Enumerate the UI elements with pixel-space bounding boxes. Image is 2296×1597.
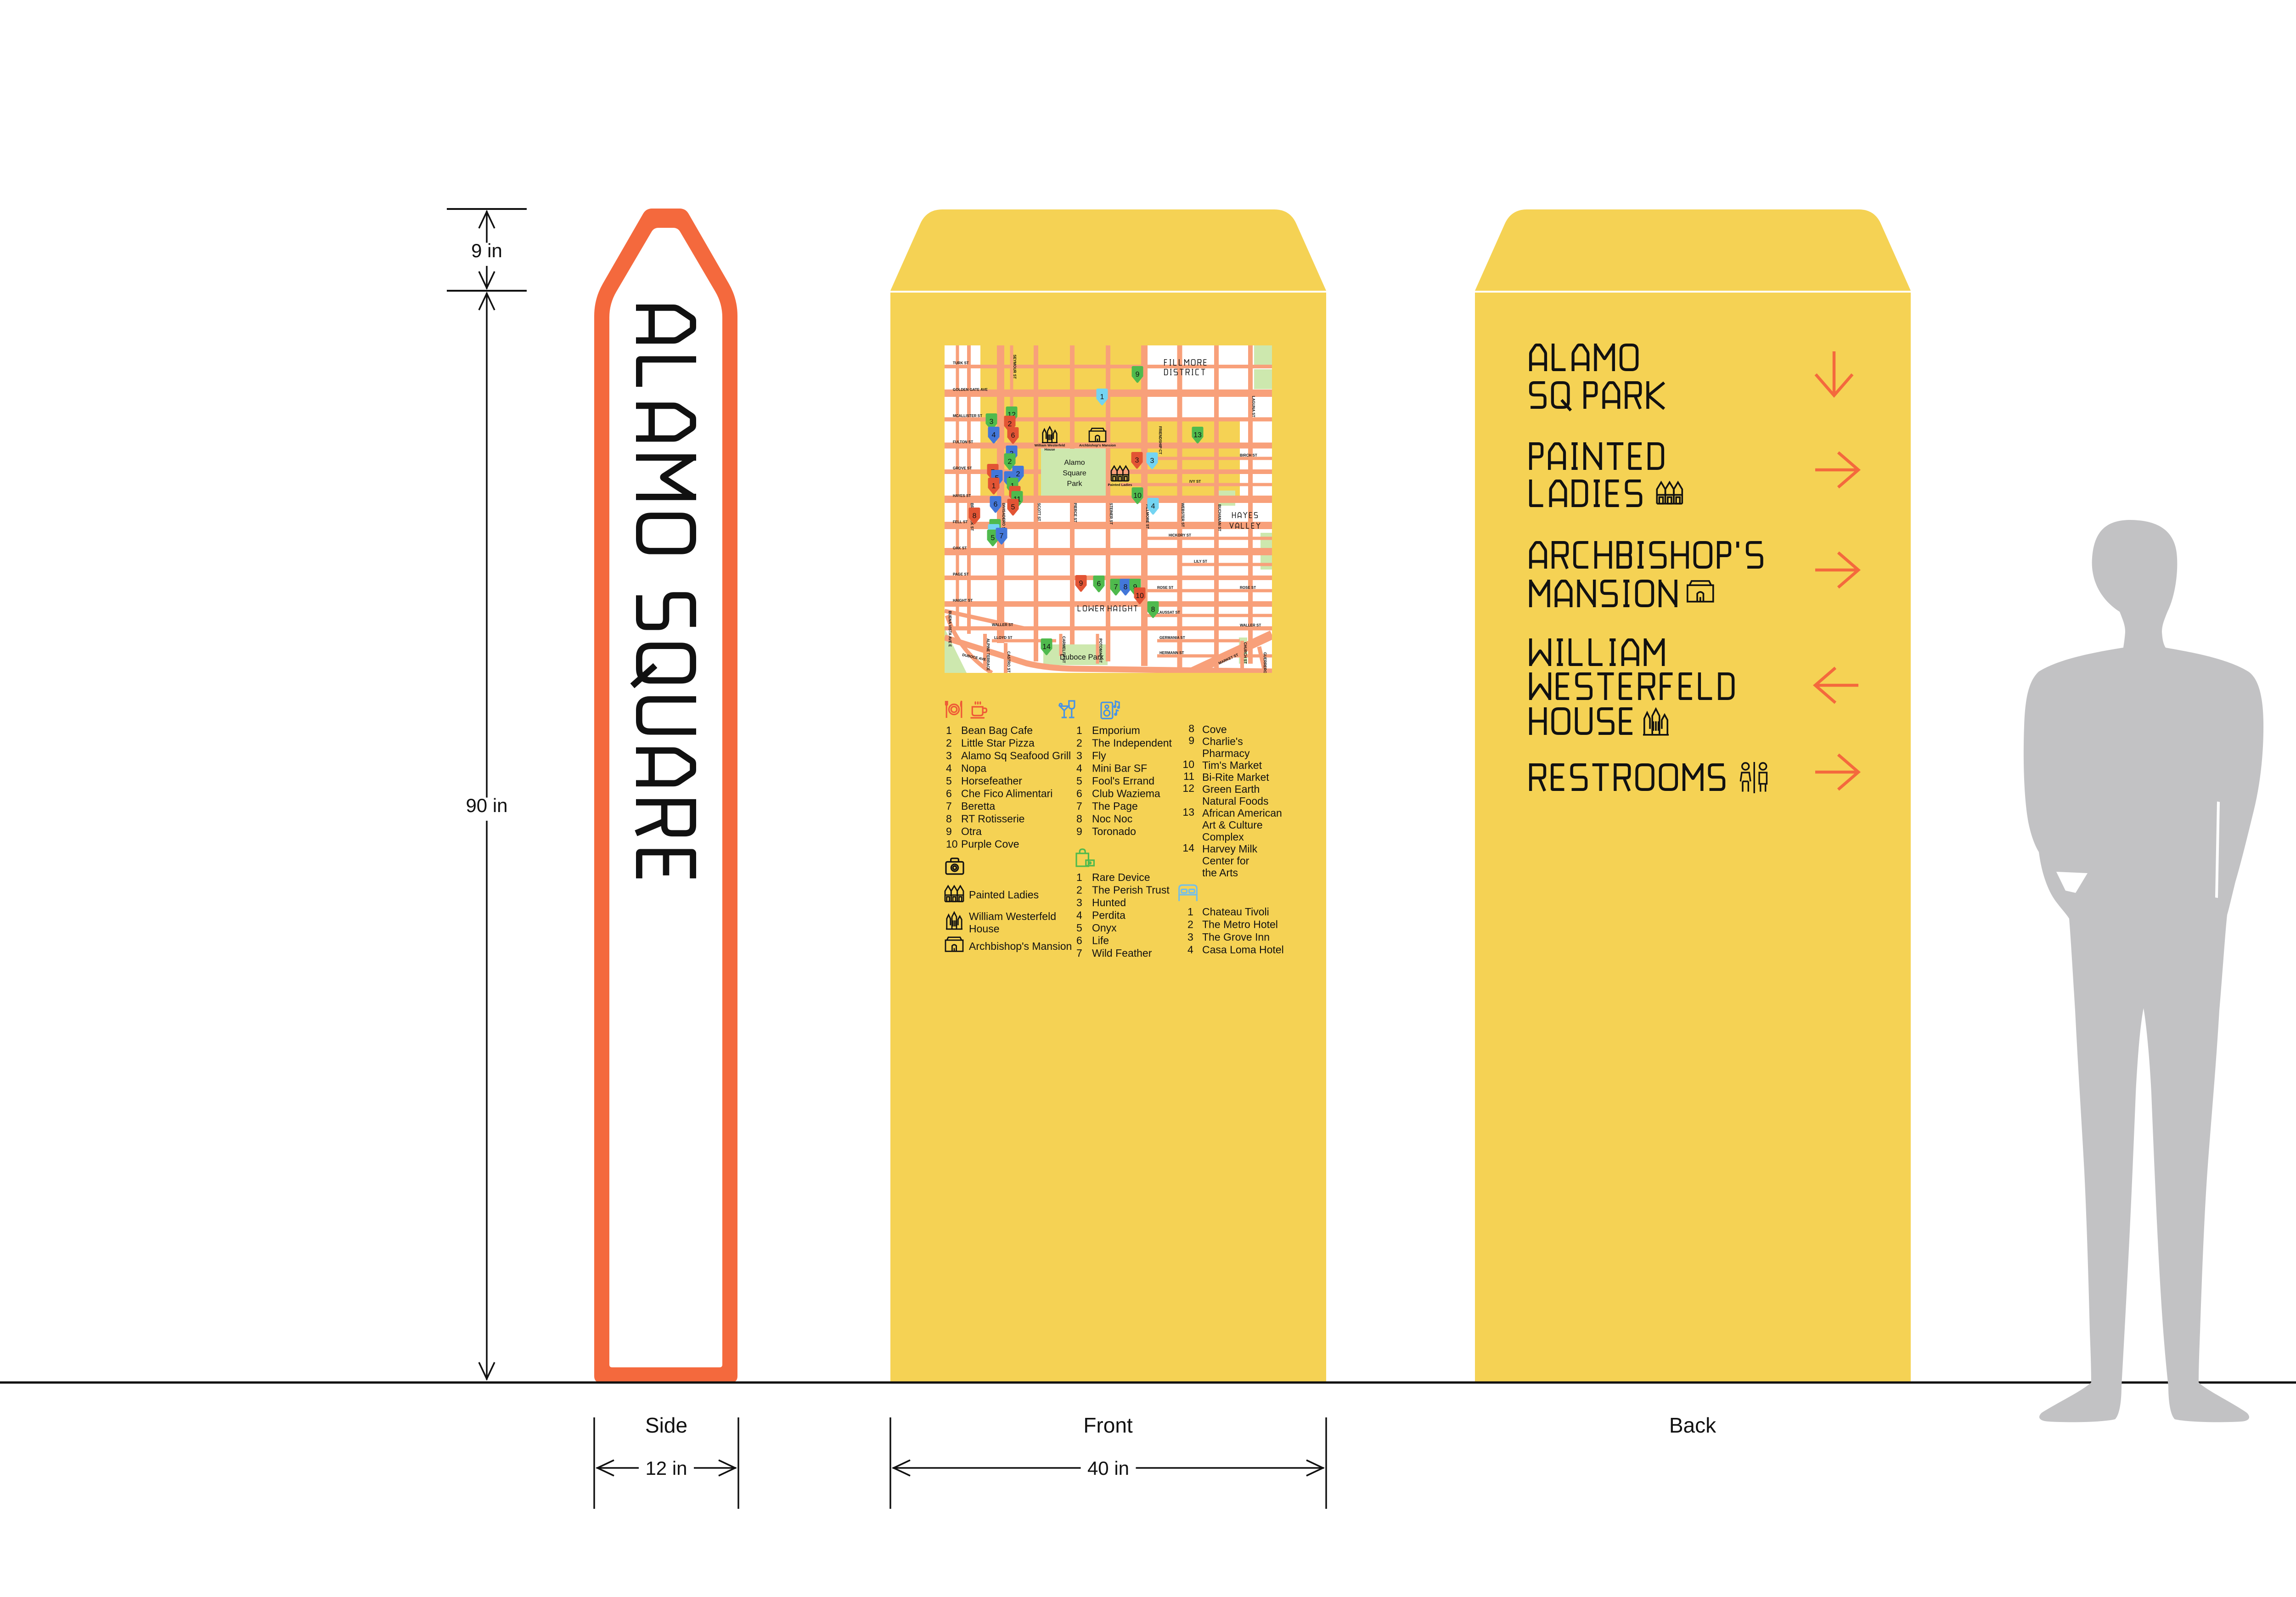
svg-text:Bi-Rite Market: Bi-Rite Market (1202, 771, 1269, 783)
svg-text:4: 4 (946, 762, 952, 774)
svg-text:William Westerfeld: William Westerfeld (969, 910, 1056, 922)
svg-text:2: 2 (1008, 420, 1012, 428)
svg-text:LAUSSAT ST: LAUSSAT ST (1157, 610, 1180, 615)
svg-text:4: 4 (1187, 944, 1193, 956)
svg-text:Center for: Center for (1202, 855, 1249, 867)
svg-text:Bean Bag Cafe: Bean Bag Cafe (961, 724, 1033, 736)
svg-text:SEYMOUR ST: SEYMOUR ST (1013, 355, 1017, 379)
svg-text:6: 6 (1011, 432, 1015, 440)
svg-text:Beretta: Beretta (961, 800, 995, 812)
svg-text:9: 9 (1188, 734, 1194, 746)
svg-text:Duboce Park: Duboce Park (1060, 653, 1104, 661)
svg-text:4: 4 (1151, 502, 1155, 510)
svg-text:Green Earth: Green Earth (1202, 783, 1260, 795)
svg-text:Perdita: Perdita (1092, 909, 1125, 921)
svg-text:Life: Life (1092, 935, 1109, 947)
svg-text:Rare Device: Rare Device (1092, 871, 1150, 883)
svg-text:OAK ST: OAK ST (953, 546, 967, 550)
svg-text:LAGUNA ST: LAGUNA ST (1251, 396, 1255, 417)
svg-text:2: 2 (1076, 737, 1082, 749)
svg-text:STEINER ST: STEINER ST (1109, 503, 1113, 525)
svg-text:Side: Side (645, 1413, 687, 1437)
svg-text:5: 5 (1076, 922, 1082, 934)
svg-text:6: 6 (1097, 580, 1101, 588)
svg-text:African American: African American (1202, 807, 1282, 819)
svg-text:1: 1 (1076, 724, 1082, 736)
svg-text:HICKORY ST: HICKORY ST (1169, 533, 1191, 537)
svg-text:Mini Bar SF: Mini Bar SF (1092, 762, 1147, 774)
svg-text:6: 6 (946, 788, 952, 800)
svg-text:6: 6 (994, 501, 998, 508)
svg-text:8: 8 (1124, 583, 1128, 591)
svg-text:Wild Feather: Wild Feather (1092, 947, 1152, 959)
svg-text:6: 6 (1076, 788, 1082, 800)
svg-text:Charlie's: Charlie's (1202, 735, 1243, 747)
svg-text:8: 8 (1151, 606, 1155, 614)
svg-text:ROSE ST: ROSE ST (1240, 586, 1256, 590)
svg-text:10: 10 (1136, 592, 1144, 600)
svg-text:1: 1 (946, 724, 952, 736)
svg-text:CASTRO ST: CASTRO ST (1007, 651, 1011, 672)
svg-text:Toronado: Toronado (1092, 825, 1136, 837)
svg-text:9: 9 (1136, 371, 1140, 378)
svg-text:7: 7 (1000, 532, 1004, 540)
svg-text:Little Star Pizza: Little Star Pizza (961, 737, 1035, 749)
svg-text:Chateau Tivoli: Chateau Tivoli (1202, 906, 1269, 918)
svg-text:8: 8 (973, 512, 977, 520)
svg-text:7: 7 (1076, 800, 1082, 812)
svg-text:4: 4 (992, 431, 996, 439)
svg-text:DIVISADERO ST: DIVISADERO ST (1002, 503, 1006, 531)
svg-text:4: 4 (1076, 909, 1082, 921)
svg-text:HERMANN ST: HERMANN ST (1159, 651, 1184, 655)
svg-text:William Westerfeld: William Westerfeld (1035, 443, 1065, 447)
svg-text:2: 2 (1187, 919, 1193, 931)
svg-text:6: 6 (1076, 935, 1082, 947)
svg-text:FULTON ST: FULTON ST (953, 440, 973, 444)
svg-text:The Perish Trust: The Perish Trust (1092, 884, 1170, 896)
svg-text:8: 8 (946, 813, 952, 825)
svg-text:40 in: 40 in (1087, 1457, 1129, 1479)
svg-text:BUCHANAN ST: BUCHANAN ST (1217, 504, 1221, 531)
svg-text:9: 9 (1079, 580, 1083, 587)
svg-text:RT Rotisserie: RT Rotisserie (961, 813, 1024, 825)
svg-text:SCOTT ST: SCOTT ST (1037, 503, 1041, 521)
svg-text:MCALLISTER ST: MCALLISTER ST (953, 414, 982, 418)
svg-text:Front: Front (1083, 1413, 1133, 1437)
svg-text:Painted Ladies: Painted Ladies (969, 889, 1039, 901)
svg-text:Tim's Market: Tim's Market (1202, 759, 1262, 771)
svg-text:House: House (1045, 447, 1055, 451)
svg-text:3: 3 (1076, 897, 1082, 909)
svg-text:1: 1 (992, 482, 996, 490)
svg-text:Onyx: Onyx (1092, 922, 1117, 934)
svg-text:11: 11 (1183, 770, 1194, 782)
svg-text:Archbishop's Mansion: Archbishop's Mansion (969, 940, 1072, 952)
svg-text:GROVE ST: GROVE ST (953, 466, 972, 470)
svg-text:GOLDEN GATE AVE: GOLDEN GATE AVE (953, 388, 988, 392)
svg-text:LLOYD ST: LLOYD ST (994, 636, 1013, 640)
svg-text:ALPINE TERRACE: ALPINE TERRACE (986, 638, 990, 671)
svg-text:Hunted: Hunted (1092, 897, 1126, 909)
svg-text:13: 13 (1182, 806, 1194, 818)
svg-text:TURK ST: TURK ST (953, 361, 969, 365)
svg-text:The Page: The Page (1092, 800, 1138, 812)
svg-text:The Grove Inn: The Grove Inn (1202, 931, 1270, 943)
svg-text:BUENA VISTA AVE E: BUENA VISTA AVE E (948, 611, 952, 647)
svg-text:Cove: Cove (1202, 723, 1227, 735)
svg-text:10: 10 (1133, 492, 1142, 500)
svg-text:10: 10 (1182, 758, 1194, 770)
svg-text:Emporium: Emporium (1092, 724, 1140, 736)
svg-text:10: 10 (946, 838, 958, 850)
svg-text:Alamo Sq Seafood Grill: Alamo Sq Seafood Grill (961, 750, 1071, 762)
svg-text:Alamo: Alamo (1064, 459, 1085, 467)
svg-text:2: 2 (1008, 458, 1012, 466)
svg-text:BIRCH ST: BIRCH ST (1240, 453, 1257, 457)
svg-text:the Arts: the Arts (1202, 867, 1238, 879)
svg-text:FRIENDSHIP CT: FRIENDSHIP CT (1158, 426, 1162, 454)
svg-text:Otra: Otra (961, 825, 982, 837)
svg-text:12: 12 (1182, 782, 1194, 794)
svg-text:Park: Park (1067, 480, 1083, 488)
svg-text:14: 14 (1042, 643, 1051, 651)
svg-text:WALLER ST: WALLER ST (992, 623, 1013, 627)
svg-text:Archbishop's Mansion: Archbishop's Mansion (1079, 443, 1116, 447)
svg-text:5: 5 (991, 534, 995, 542)
svg-text:9 in: 9 in (471, 240, 502, 261)
svg-text:4: 4 (1076, 762, 1082, 774)
svg-text:Casa Loma Hotel: Casa Loma Hotel (1202, 944, 1284, 956)
svg-text:Square: Square (1063, 469, 1086, 477)
svg-text:14: 14 (1182, 842, 1194, 854)
svg-text:3: 3 (1187, 931, 1193, 943)
svg-text:HAYES ST: HAYES ST (953, 494, 971, 498)
svg-text:3: 3 (1135, 457, 1139, 464)
svg-text:The Metro Hotel: The Metro Hotel (1202, 919, 1278, 931)
svg-text:5: 5 (946, 775, 952, 787)
svg-text:7: 7 (1114, 583, 1118, 591)
svg-text:WEBSTER ST: WEBSTER ST (1181, 503, 1185, 527)
svg-text:2: 2 (946, 737, 952, 749)
svg-text:Purple Cove: Purple Cove (961, 838, 1019, 850)
svg-text:Nopa: Nopa (961, 762, 986, 774)
svg-text:PIERCE ST: PIERCE ST (1073, 503, 1077, 522)
svg-text:Painted Ladies: Painted Ladies (1108, 483, 1132, 487)
svg-text:3: 3 (990, 418, 994, 426)
svg-text:Horsefeather: Horsefeather (961, 775, 1022, 787)
svg-text:Noc Noc: Noc Noc (1092, 813, 1132, 825)
svg-text:WALLER ST: WALLER ST (1240, 623, 1261, 627)
svg-text:7: 7 (946, 800, 952, 812)
svg-text:House: House (969, 923, 999, 935)
svg-text:Back: Back (1669, 1413, 1716, 1437)
svg-text:Pharmacy: Pharmacy (1202, 747, 1250, 759)
svg-text:Natural Foods: Natural Foods (1202, 795, 1268, 807)
svg-text:2: 2 (1076, 884, 1082, 896)
svg-text:2: 2 (1016, 470, 1020, 478)
svg-text:3: 3 (1076, 750, 1082, 762)
svg-text:7: 7 (1076, 947, 1082, 959)
svg-text:ROSE ST: ROSE ST (1157, 586, 1173, 590)
svg-text:Art & Culture: Art & Culture (1202, 819, 1263, 831)
svg-text:Harvey Milk: Harvey Milk (1202, 843, 1258, 855)
svg-text:9: 9 (946, 825, 952, 837)
svg-text:3: 3 (946, 750, 952, 762)
svg-text:PAGE ST: PAGE ST (953, 572, 969, 576)
svg-text:1: 1 (1100, 393, 1104, 401)
svg-text:1: 1 (1076, 871, 1082, 883)
svg-text:Che Fico Alimentari: Che Fico Alimentari (961, 788, 1052, 800)
svg-text:8: 8 (1076, 813, 1082, 825)
svg-text:8: 8 (1188, 722, 1194, 734)
svg-text:12 in: 12 in (645, 1457, 687, 1479)
svg-text:13: 13 (1193, 431, 1202, 439)
svg-text:5: 5 (1076, 775, 1082, 787)
svg-text:The Independent: The Independent (1092, 737, 1172, 749)
svg-text:IVY ST: IVY ST (1189, 480, 1201, 484)
svg-text:3: 3 (1150, 457, 1154, 465)
svg-text:Complex: Complex (1202, 831, 1244, 843)
svg-text:GERMANIA ST: GERMANIA ST (1159, 636, 1185, 640)
svg-text:90 in: 90 in (466, 795, 507, 816)
svg-text:Fool's Errand: Fool's Errand (1092, 775, 1154, 787)
svg-text:LILY ST: LILY ST (1194, 559, 1207, 564)
svg-text:Club Waziema: Club Waziema (1092, 788, 1160, 800)
svg-text:CHURCH ST: CHURCH ST (1243, 642, 1247, 664)
svg-text:1: 1 (1187, 906, 1193, 918)
svg-text:HAIGHT ST: HAIGHT ST (953, 598, 973, 603)
svg-text:9: 9 (1076, 825, 1082, 837)
svg-text:FELL ST: FELL ST (953, 520, 968, 524)
svg-text:Fly: Fly (1092, 750, 1106, 762)
svg-text:5: 5 (1011, 503, 1015, 511)
